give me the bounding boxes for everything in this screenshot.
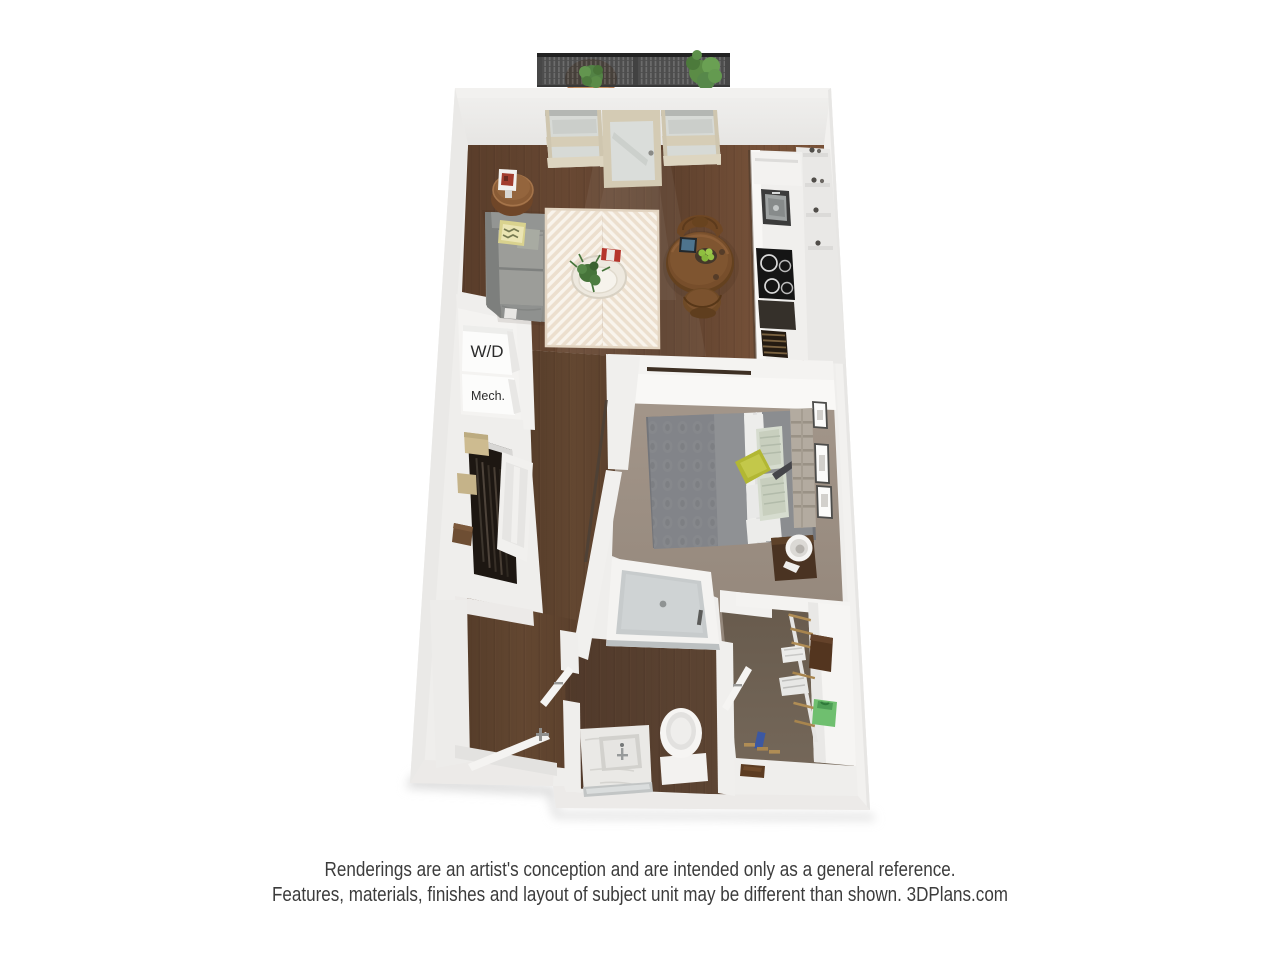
svg-text:Features, materials, finishes: Features, materials, finishes and layout… [272, 884, 1008, 906]
svg-text:Mech.: Mech. [471, 389, 505, 403]
svg-text:W/D: W/D [470, 342, 503, 361]
svg-text:Renderings are an artist's con: Renderings are an artist's conception an… [325, 859, 956, 881]
